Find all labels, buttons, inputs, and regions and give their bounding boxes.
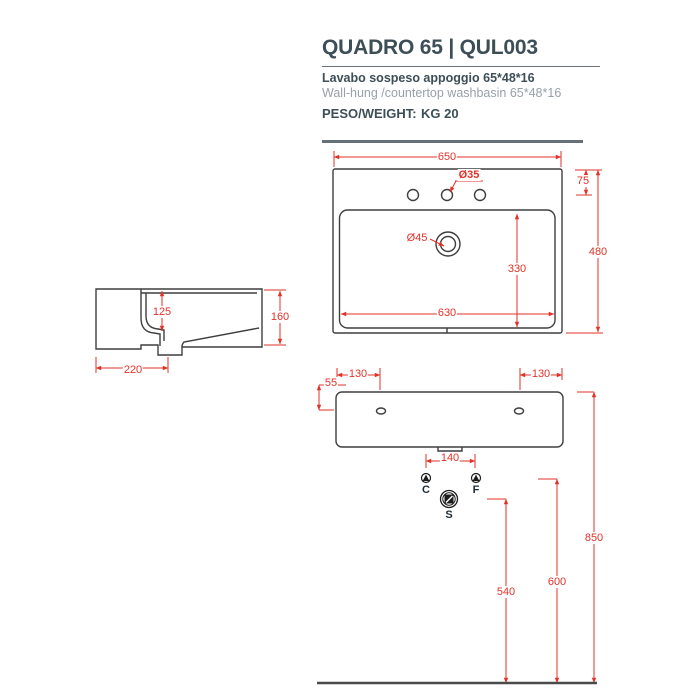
dim-overall-width: 650 — [437, 151, 457, 163]
dim-hole-offset-left: 130 — [348, 368, 368, 380]
hot-water-label: F — [473, 484, 480, 496]
dim-hole-offset-right: 130 — [531, 368, 551, 380]
faucet-hole-right — [475, 190, 486, 201]
basin-outline-side — [96, 289, 262, 355]
mounting-hole-right — [515, 408, 524, 414]
dim-supply-height: 600 — [547, 576, 567, 588]
faucet-hole-left — [408, 190, 419, 201]
dim-tap-spacing: 140 — [440, 452, 460, 464]
cold-water-icon — [422, 474, 431, 483]
basin-outline-front — [336, 392, 563, 447]
dim-inner-width: 630 — [437, 307, 457, 319]
side-view-drawing — [96, 289, 262, 355]
front-view-dimensions — [319, 368, 594, 683]
hot-water-icon — [472, 474, 481, 483]
mounting-hole-left — [377, 408, 386, 414]
dim-drain-diameter: Ø45 — [406, 232, 429, 244]
siphon-icon — [441, 491, 458, 508]
dim-rim-height: 850 — [584, 532, 604, 544]
dim-faucet-offset: 75 — [576, 175, 590, 187]
dim-faucet-hole-diameter: Ø35 — [458, 169, 481, 181]
drain-inner-circle — [441, 237, 456, 252]
side-view-dimensions — [96, 290, 286, 373]
basin-bottom-slope — [182, 328, 259, 347]
dim-basin-inner-depth: 125 — [152, 306, 172, 318]
dim-drain-distance: 220 — [123, 364, 143, 376]
dim-overall-depth: 480 — [588, 246, 608, 258]
siphon-label: S — [445, 509, 452, 521]
cold-water-label: C — [422, 484, 430, 496]
dim-inner-depth: 330 — [507, 263, 527, 275]
dim-hole-top-offset: 55 — [324, 377, 338, 389]
technical-drawing — [0, 0, 700, 700]
dim-overall-height: 160 — [270, 311, 290, 323]
front-view-drawing — [336, 392, 563, 451]
dim-siphon-height: 540 — [496, 586, 516, 598]
